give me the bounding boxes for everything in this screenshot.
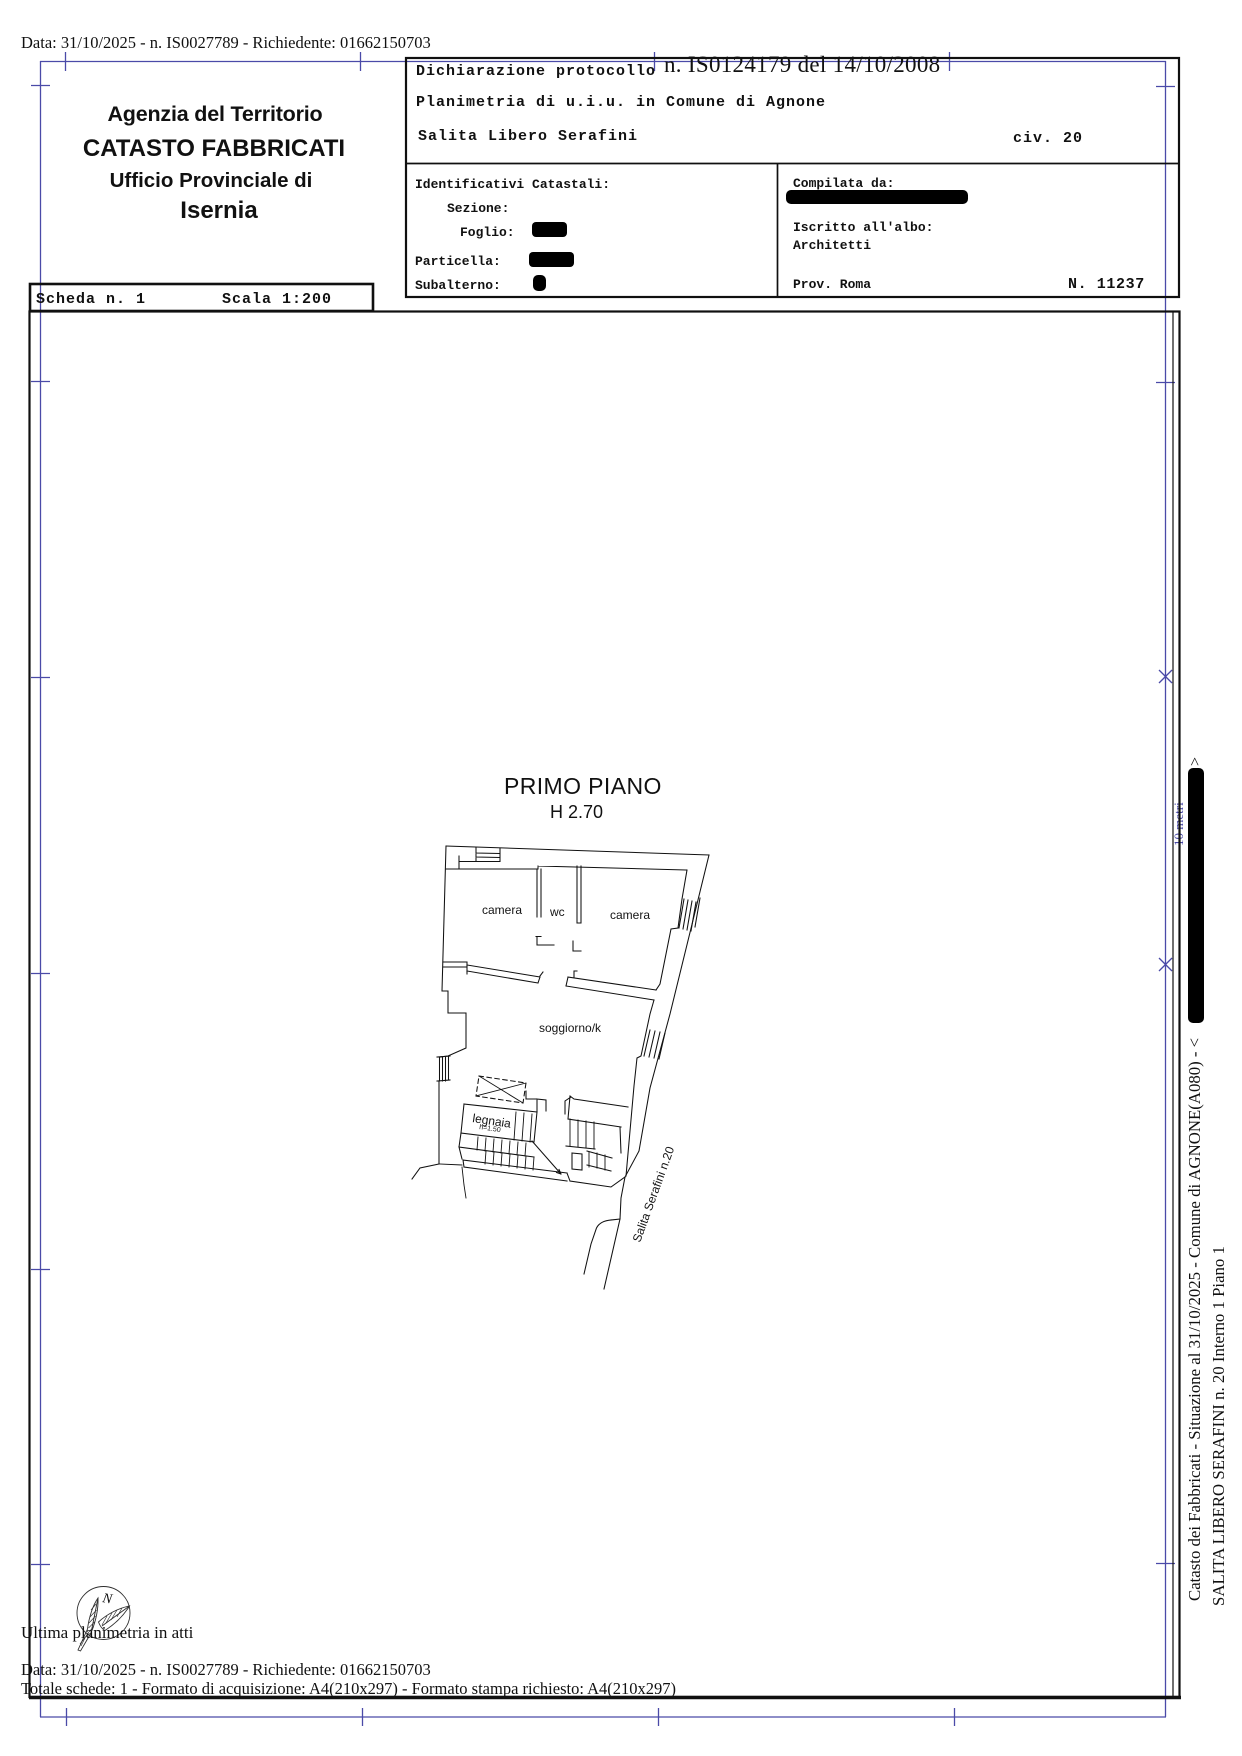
svg-text:Sezione:: Sezione: — [447, 201, 509, 216]
svg-text:Planimetria di u.i.u. in Comun: Planimetria di u.i.u. in Comune di Agnon… — [416, 94, 826, 111]
svg-text:N. 11237: N. 11237 — [1068, 276, 1145, 293]
svg-text:Foglio:: Foglio: — [460, 225, 515, 240]
svg-text:PRIMO PIANO: PRIMO PIANO — [504, 773, 662, 799]
svg-text:n. IS0124179 del 14/10/2008: n. IS0124179 del 14/10/2008 — [664, 52, 940, 77]
svg-text:Data: 31/10/2025 - n. IS002778: Data: 31/10/2025 - n. IS0027789 - Richie… — [21, 33, 431, 52]
svg-text:CATASTO FABBRICATI: CATASTO FABBRICATI — [83, 135, 345, 162]
svg-text:Architetti: Architetti — [793, 238, 871, 253]
svg-text:N: N — [100, 1591, 113, 1608]
svg-text:>: > — [1187, 757, 1204, 766]
svg-text:Scala 1:200: Scala 1:200 — [222, 291, 332, 308]
svg-text:Catasto dei Fabbricati - Situa: Catasto dei Fabbricati - Situazione al 3… — [1185, 1038, 1204, 1601]
svg-text:Totale schede: 1 - Formato di: Totale schede: 1 - Formato di acquisizio… — [21, 1679, 676, 1698]
svg-text:Subalterno:: Subalterno: — [415, 278, 501, 293]
svg-text:Particella:: Particella: — [415, 254, 501, 269]
svg-text:Prov. Roma: Prov. Roma — [793, 277, 871, 292]
svg-text:Salita Libero Serafini: Salita Libero Serafini — [418, 128, 638, 145]
svg-text:Agenzia del Territorio: Agenzia del Territorio — [107, 102, 322, 126]
svg-text:soggiorno/k: soggiorno/k — [539, 1021, 602, 1035]
svg-text:Isernia: Isernia — [180, 197, 258, 224]
svg-text:Dichiarazione protocollo: Dichiarazione protocollo — [416, 63, 656, 80]
svg-text:civ. 20: civ. 20 — [1013, 130, 1083, 147]
svg-text:camera: camera — [482, 903, 522, 917]
svg-text:Identificativi Catastali:: Identificativi Catastali: — [415, 177, 610, 192]
svg-text:Scheda n. 1: Scheda n. 1 — [36, 291, 146, 308]
svg-text:H 2.70: H 2.70 — [550, 802, 603, 822]
svg-text:Iscritto all'albo:: Iscritto all'albo: — [793, 220, 933, 235]
svg-text:wc: wc — [549, 905, 565, 919]
svg-text:Ultima planimetria in atti: Ultima planimetria in atti — [21, 1623, 194, 1642]
svg-text:Data: 31/10/2025 - n. IS002778: Data: 31/10/2025 - n. IS0027789 - Richie… — [21, 1660, 431, 1679]
svg-text:Compilata da:: Compilata da: — [793, 176, 894, 191]
svg-text:Salita Serafini n.20: Salita Serafini n.20 — [630, 1144, 678, 1244]
svg-text:camera: camera — [610, 908, 650, 922]
svg-text:SALITA LIBERO SERAFINI n. 20: SALITA LIBERO SERAFINI n. 20 Interno 1 P… — [1209, 1246, 1228, 1606]
svg-text:Ufficio Provinciale di: Ufficio Provinciale di — [110, 169, 313, 192]
